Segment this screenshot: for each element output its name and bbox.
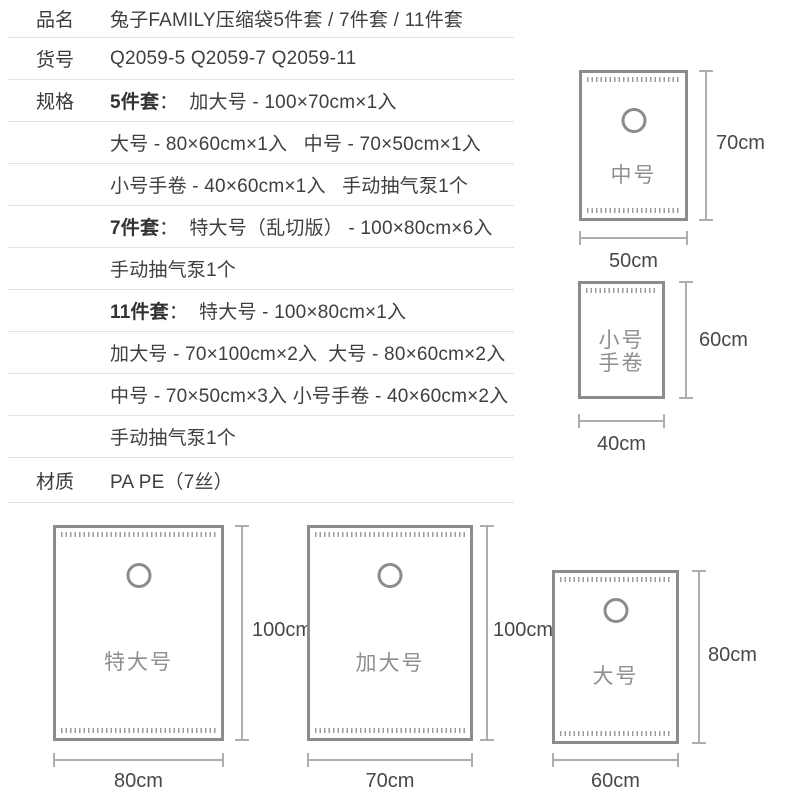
spec-set-name: 5件套 [110, 92, 159, 113]
spec-row-value: 5件套： 加大号 - 100×70cm×1入 [110, 87, 397, 114]
spec-text: ： 加大号 - 100×70cm×1入 [159, 92, 396, 113]
spec-row-11pc-set: 11件套： 特大号 - 100×80cm×1入 [8, 290, 514, 332]
spec-row-material: 材质 PA PE（7丝） [8, 458, 514, 503]
spec-row-product-name: 品名 兔子FAMILY压缩袋5件套 / 7件套 / 11件套 [8, 0, 514, 38]
spec-row-value: Q2059-5 Q2059-7 Q2059-11 [110, 48, 356, 70]
spec-row-value: 手动抽气泵1个 [110, 255, 236, 282]
height-dimension-line [692, 570, 706, 744]
spec-text: Q2059-5 Q2059-7 Q2059-11 [110, 48, 356, 69]
air-valve-icon [126, 563, 151, 588]
spec-row-value: 小号手卷 - 40×60cm×1入 手动抽气泵1个 [110, 171, 468, 198]
bag-size-label-line: 加大号 [356, 652, 425, 675]
spec-set-name: 11件套 [110, 302, 169, 323]
spec-text: 小号手卷 - 40×60cm×1入 手动抽气泵1个 [110, 176, 468, 197]
bag-size-label-line: 手卷 [581, 352, 662, 375]
spec-text: 大号 - 80×60cm×1入 中号 - 70×50cm×1入 [110, 134, 481, 155]
air-valve-icon [378, 563, 403, 588]
bag-size-label-line: 中号 [611, 164, 657, 187]
width-dimension-label: 70cm [307, 769, 473, 793]
seal-dots-icon [587, 77, 680, 82]
spec-text: 兔子FAMILY压缩袋5件套 / 7件套 / 11件套 [110, 10, 463, 31]
seal-dots-icon [560, 577, 671, 582]
spec-text: 手动抽气泵1个 [110, 428, 236, 449]
bag-diagram-small-roll: 小号手卷 [578, 281, 665, 399]
spec-row-value: 中号 - 70×50cm×3入 小号手卷 - 40×60cm×2入 [110, 381, 508, 408]
spec-text: 手动抽气泵1个 [110, 260, 236, 281]
seal-dots-icon [61, 532, 216, 537]
seal-dots-icon [315, 532, 465, 537]
height-dimension-line [480, 525, 494, 741]
spec-row: 小号手卷 - 40×60cm×1入 手动抽气泵1个 [8, 164, 514, 206]
width-dimension-label: 40cm [578, 432, 665, 456]
spec-text: 中号 - 70×50cm×3入 小号手卷 - 40×60cm×2入 [110, 386, 508, 407]
spec-row-5pc-set: 规格 5件套： 加大号 - 100×70cm×1入 [8, 80, 514, 122]
height-dimension-label: 60cm [699, 328, 748, 352]
spec-row-item-number: 货号 Q2059-5 Q2059-7 Q2059-11 [8, 38, 514, 80]
seal-dots-icon [587, 208, 680, 213]
width-dimension-line [552, 753, 679, 767]
bag-size-label-line: 特大号 [104, 651, 173, 674]
bag-size-label: 小号手卷 [581, 329, 662, 375]
spec-table: 品名 兔子FAMILY压缩袋5件套 / 7件套 / 11件套 货号 Q2059-… [8, 0, 514, 503]
spec-text: PA PE（7丝） [110, 472, 233, 493]
bag-diagram-large: 大号 [552, 570, 679, 744]
spec-row-value: 大号 - 80×60cm×1入 中号 - 70×50cm×1入 [110, 129, 481, 156]
height-dimension-label: 100cm [252, 618, 312, 642]
width-dimension-label: 50cm [579, 249, 688, 273]
spec-row: 中号 - 70×50cm×3入 小号手卷 - 40×60cm×2入 [8, 374, 514, 416]
width-dimension-line [53, 753, 224, 767]
spec-row-value: 7件套： 特大号（乱切版） - 100×80cm×6入 [110, 213, 493, 240]
height-dimension-line [235, 525, 249, 741]
spec-row-value: 加大号 - 70×100cm×2入 大号 - 80×60cm×2入 [110, 339, 505, 366]
bag-diagram-extra-large: 加大号 [307, 525, 473, 741]
bag-size-label: 大号 [555, 665, 676, 688]
seal-dots-icon [560, 731, 671, 736]
bag-diagram-medium: 中号 [579, 70, 688, 221]
spec-row-label: 材质 [8, 467, 110, 494]
bag-size-label-line: 小号 [581, 329, 662, 352]
bag-size-label: 特大号 [56, 651, 221, 674]
spec-row-7pc-set: 7件套： 特大号（乱切版） - 100×80cm×6入 [8, 206, 514, 248]
air-valve-icon [621, 108, 646, 133]
bag-size-label: 中号 [582, 164, 685, 187]
spec-text: 加大号 - 70×100cm×2入 大号 - 80×60cm×2入 [110, 344, 505, 365]
bag-diagram-super-large: 特大号 [53, 525, 224, 741]
spec-row: 加大号 - 70×100cm×2入 大号 - 80×60cm×2入 [8, 332, 514, 374]
height-dimension-line [699, 70, 713, 221]
width-dimension-line [578, 414, 665, 428]
spec-row-label: 货号 [8, 45, 110, 72]
spec-row: 手动抽气泵1个 [8, 416, 514, 458]
height-dimension-label: 80cm [708, 643, 757, 667]
width-dimension-label: 80cm [53, 769, 224, 793]
spec-row: 大号 - 80×60cm×1入 中号 - 70×50cm×1入 [8, 122, 514, 164]
height-dimension-label: 70cm [716, 131, 765, 155]
width-dimension-label: 60cm [552, 769, 679, 793]
width-dimension-line [579, 231, 688, 245]
height-dimension-line [679, 281, 693, 399]
spec-text: ： 特大号（乱切版） - 100×80cm×6入 [159, 218, 492, 239]
bag-size-label-line: 大号 [593, 665, 639, 688]
spec-text: ： 特大号 - 100×80cm×1入 [169, 302, 406, 323]
product-spec-sheet: { "colors": { "background": "#ffffff", "… [0, 0, 800, 800]
spec-row-value: 兔子FAMILY压缩袋5件套 / 7件套 / 11件套 [110, 5, 463, 32]
spec-row-label: 规格 [8, 87, 110, 114]
seal-dots-icon [586, 288, 657, 293]
spec-set-name: 7件套 [110, 218, 159, 239]
height-dimension-label: 100cm [493, 618, 553, 642]
spec-row-value: 11件套： 特大号 - 100×80cm×1入 [110, 297, 406, 324]
spec-row-label: 品名 [8, 5, 110, 32]
spec-row-value: 手动抽气泵1个 [110, 423, 236, 450]
spec-row-value: PA PE（7丝） [110, 467, 233, 494]
bag-size-label: 加大号 [310, 652, 470, 675]
seal-dots-icon [61, 728, 216, 733]
width-dimension-line [307, 753, 473, 767]
seal-dots-icon [315, 728, 465, 733]
air-valve-icon [603, 598, 628, 623]
spec-row: 手动抽气泵1个 [8, 248, 514, 290]
